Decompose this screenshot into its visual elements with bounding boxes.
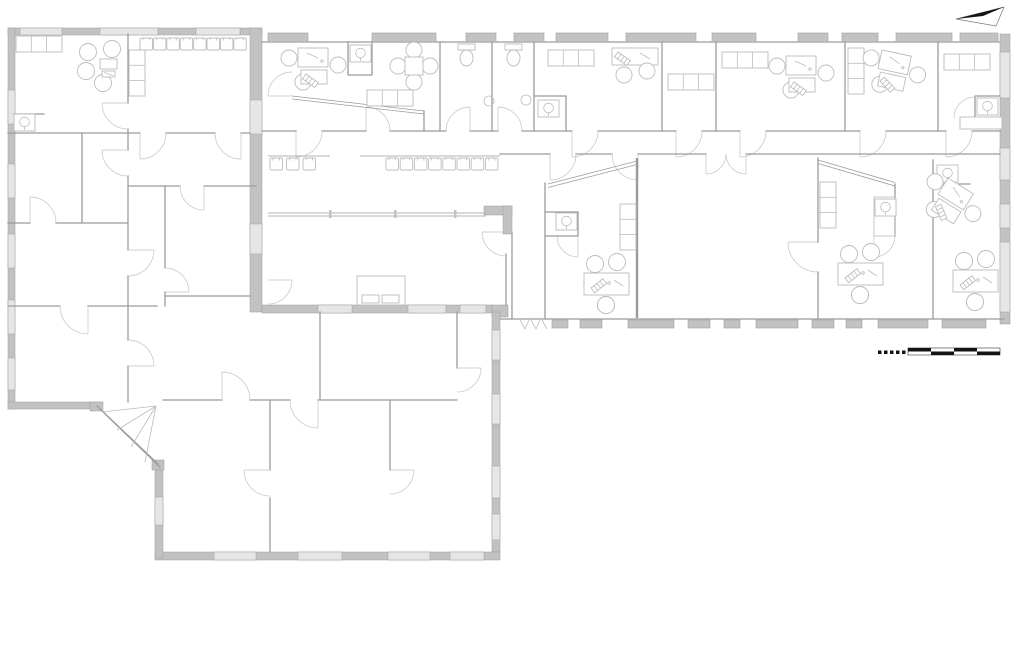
scale-bar-subdivision — [902, 351, 906, 355]
window — [878, 320, 928, 328]
window — [408, 305, 446, 313]
building-b — [90, 305, 508, 560]
window — [8, 234, 15, 268]
walls-rooms — [512, 158, 970, 318]
glass-post — [329, 210, 332, 218]
window — [1000, 242, 1010, 312]
scale-bar-subdivision — [896, 351, 900, 355]
scale-bar-subdivision — [884, 351, 888, 355]
window — [842, 33, 878, 42]
sofa — [548, 50, 594, 66]
sofa — [944, 54, 990, 70]
windows-b-left — [155, 497, 163, 525]
doors-a — [30, 103, 241, 366]
wall-step — [503, 206, 512, 234]
window — [450, 552, 484, 560]
window — [552, 320, 568, 328]
glass-post — [454, 210, 457, 218]
desk-group — [857, 46, 929, 101]
waiting-chair — [207, 38, 220, 50]
doors-corridor — [296, 107, 972, 157]
window — [20, 28, 62, 35]
waiting-chair — [153, 38, 166, 50]
door-office1 — [268, 72, 292, 96]
window — [492, 394, 500, 424]
sink — [521, 95, 531, 105]
waiting-chair — [485, 158, 498, 170]
window — [318, 305, 352, 313]
window — [250, 224, 262, 254]
scale-bar-subdivision — [878, 351, 882, 355]
waiting-chair — [167, 38, 180, 50]
window — [492, 514, 500, 540]
wall-a-right — [250, 28, 262, 312]
scale-bar-segment — [954, 348, 977, 352]
scale-bar-segment — [931, 352, 954, 356]
north-arrow-icon — [956, 7, 1004, 26]
glass-wall — [268, 213, 486, 216]
waiting-chair — [457, 158, 470, 170]
waiting-chair — [270, 158, 283, 170]
window — [214, 552, 256, 560]
window — [372, 33, 436, 42]
window — [100, 28, 158, 35]
window — [580, 320, 602, 328]
wall-a-bottom-left — [8, 402, 100, 409]
sink — [14, 114, 35, 131]
waiting-chair — [303, 158, 316, 170]
meeting-table — [953, 251, 998, 311]
window — [756, 320, 798, 328]
scale-bar-segment — [908, 348, 931, 352]
window — [8, 300, 15, 334]
desk-group — [769, 56, 834, 98]
window — [626, 33, 696, 42]
window — [556, 33, 608, 42]
waiting-chair — [287, 158, 300, 170]
toilet — [458, 44, 475, 66]
windows-a-top — [20, 28, 240, 35]
meeting-table — [584, 254, 629, 314]
sideboard — [668, 74, 714, 90]
scale-bar-segment — [977, 352, 1000, 356]
window — [688, 320, 710, 328]
building-a — [8, 28, 262, 409]
window — [712, 33, 756, 42]
window — [724, 320, 740, 328]
round-table — [390, 42, 438, 90]
window — [1000, 204, 1010, 228]
window — [8, 358, 15, 390]
window — [388, 552, 430, 560]
sink — [977, 98, 998, 115]
waiting-chair — [429, 158, 442, 170]
window — [298, 552, 342, 560]
counter — [960, 117, 1002, 129]
kitchenette-counter — [367, 90, 413, 106]
waiting-chair — [386, 158, 399, 170]
floor-plan-page — [0, 0, 1024, 663]
window — [628, 320, 674, 328]
desk-group — [281, 48, 346, 90]
window — [514, 33, 544, 42]
waiting-chair — [471, 158, 484, 170]
waiting-chair-row — [386, 158, 498, 170]
waiting-chair — [194, 38, 207, 50]
glass-post — [394, 210, 397, 218]
sink — [538, 100, 559, 117]
doors-b — [222, 368, 481, 496]
floor-plan-canvas — [0, 0, 1024, 663]
waiting-chair — [180, 38, 193, 50]
cabinet — [129, 50, 145, 96]
window — [268, 33, 308, 42]
waiting-chair-row — [270, 158, 316, 170]
chair-row — [140, 38, 246, 50]
waiting-chair — [443, 158, 456, 170]
waiting-chair — [220, 38, 233, 50]
cabinet — [820, 182, 836, 228]
window — [155, 497, 163, 525]
sink — [556, 213, 577, 230]
window — [492, 330, 500, 360]
sink — [875, 199, 896, 216]
windows-wing-bottom — [552, 320, 986, 328]
waiting-chair — [234, 38, 247, 50]
window — [492, 466, 500, 498]
window — [960, 33, 998, 42]
meeting-table — [838, 244, 883, 304]
window — [1000, 52, 1010, 98]
waiting-chair — [400, 158, 413, 170]
window — [846, 320, 862, 328]
window — [250, 100, 262, 134]
walls-room-diagonals — [548, 160, 895, 188]
cabinet — [848, 48, 864, 94]
window — [896, 33, 952, 42]
wing-right — [262, 33, 1010, 329]
window — [798, 33, 828, 42]
desk-group — [911, 169, 988, 239]
lounge-seating — [78, 41, 121, 92]
window — [460, 305, 486, 313]
desk-group — [612, 48, 658, 83]
window — [812, 320, 834, 328]
window — [196, 28, 240, 35]
window — [1000, 148, 1010, 180]
window — [942, 320, 986, 328]
cabinet — [620, 204, 636, 250]
waiting-chair — [140, 38, 153, 50]
scale-bar — [878, 348, 1000, 355]
scale-bar-subdivision — [890, 351, 894, 355]
window — [8, 164, 15, 198]
sink — [350, 45, 371, 62]
wall-a-left — [8, 28, 15, 409]
bed — [357, 276, 405, 305]
waiting-chair — [414, 158, 427, 170]
door-office7-closet — [954, 97, 975, 118]
wardrobe — [16, 36, 62, 52]
walls-b-interior — [163, 312, 457, 552]
toilet — [505, 44, 522, 66]
sofa — [722, 52, 768, 68]
window — [466, 33, 496, 42]
windows-wing-top — [268, 33, 998, 42]
